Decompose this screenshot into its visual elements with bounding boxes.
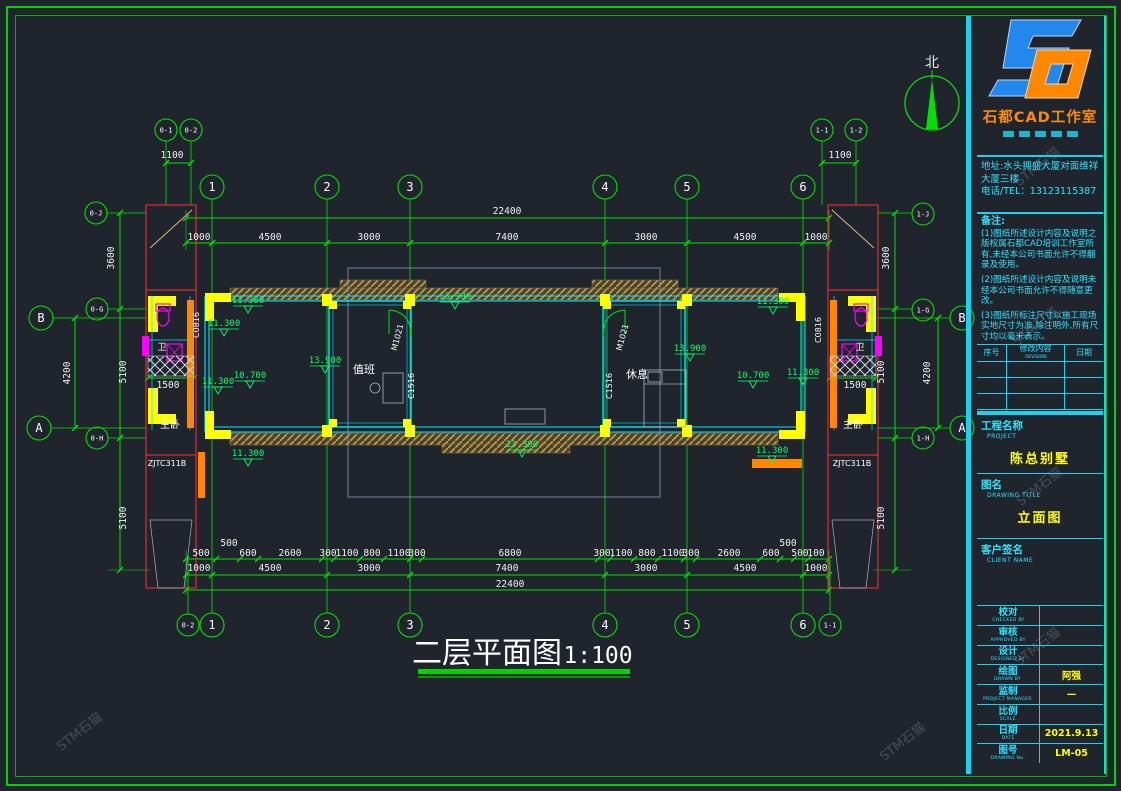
personnel-table: 校对CHECKED BY审核APPROVED BY设计DESIGNED BY绘图…: [977, 606, 1103, 763]
drawing-title-label: 图名: [977, 474, 1103, 492]
rev-cell: [1065, 378, 1103, 394]
sheet-border-inner: [15, 15, 1107, 777]
note-item: (2)图纸所述设计内容及说明未经本公司书面允许不得随意更改。: [981, 275, 1101, 307]
field-row-scale: 比例SCALE: [977, 705, 1103, 725]
address-section: 地址:水头拥盛大厦对面维祥 大厦三楼 电话/TEL：13123115387: [977, 157, 1103, 214]
logo-tagline-blocks: [977, 131, 1103, 137]
titleblock-right-band: [1104, 16, 1106, 774]
project-section: 工程名称 PROJECT 陈总别墅: [977, 415, 1103, 474]
rev-cell: [1007, 378, 1065, 394]
field-row-drawn-by: 绘图DRAWN BY阿强: [977, 665, 1103, 685]
field-row-drawing-no-: 图号DRAWING No.LM-05: [977, 744, 1103, 763]
field-value: 2021.9.13: [1040, 725, 1103, 744]
notes-title: 备注:: [981, 217, 1101, 228]
field-value: [1040, 646, 1103, 665]
address-line: 大厦三楼: [981, 174, 1100, 187]
project-name: 陈总别墅: [977, 448, 1103, 467]
rev-cell: [1007, 362, 1065, 378]
company-name: 石都CAD工作室: [977, 106, 1103, 127]
rev-cell: [1065, 394, 1103, 410]
note-item: (3)图纸所标注尺寸以施工现场实地尺寸为准,除注明外,所有尺寸均以毫米表示。: [981, 311, 1101, 343]
field-value: [1040, 626, 1103, 645]
rev-cell: [977, 378, 1007, 394]
titleblock-left-band: [966, 16, 971, 774]
field-value: —: [1040, 685, 1103, 704]
rev-header-no: 序号: [977, 345, 1007, 362]
rev-header-content: 修改内容 REVISION: [1007, 345, 1065, 362]
client-label: 客户签名: [977, 539, 1103, 557]
rev-cell: [1065, 362, 1103, 378]
field-row-approved-by: 审核APPROVED BY: [977, 626, 1103, 646]
rev-cell: [1007, 394, 1065, 410]
company-logo-section: 石都CAD工作室: [977, 16, 1103, 157]
cad-sheet: 1234561234560-10-21-11-20-21-1BABA0-J0-G…: [0, 0, 1121, 791]
phone-line: 电话/TEL：13123115387: [981, 186, 1100, 199]
address-line: 地址:水头拥盛大厦对面维祥: [981, 161, 1100, 174]
field-value: LM-05: [1040, 744, 1103, 763]
drawing-title-section: 图名 DRAWING TITLE 立面图: [977, 474, 1103, 539]
field-value: [1040, 606, 1103, 625]
rev-cell: [977, 394, 1007, 410]
drawing-title-value: 立面图: [977, 507, 1103, 526]
field-row-date: 日期DATE2021.9.13: [977, 725, 1103, 745]
field-row-designed-by: 设计DESIGNED BY: [977, 646, 1103, 666]
title-block: 石都CAD工作室 地址:水头拥盛大厦对面维祥 大厦三楼 电话/TEL：13123…: [977, 16, 1103, 774]
client-signature-section: 客户签名 CLIENT NAME: [977, 539, 1103, 606]
field-row-checked-by: 校对CHECKED BY: [977, 606, 1103, 626]
sd-logo-icon: [981, 16, 1099, 100]
notes-section: 备注: (1)图纸所述设计内容及说明之版权属石都CAD培训工作室所有,未经本公司…: [977, 214, 1103, 345]
revision-table: 序号 修改内容 REVISION 日期: [977, 345, 1103, 412]
rev-cell: [977, 362, 1007, 378]
field-value: 阿强: [1040, 665, 1103, 684]
rev-header-date: 日期: [1065, 345, 1103, 362]
project-label: 工程名称: [977, 415, 1103, 433]
field-value: [1040, 705, 1103, 724]
field-row-project-manager: 监制PROJECT MANAGER—: [977, 685, 1103, 705]
note-item: (1)图纸所述设计内容及说明之版权属石都CAD培训工作室所有,未经本公司书面允许…: [981, 229, 1101, 271]
